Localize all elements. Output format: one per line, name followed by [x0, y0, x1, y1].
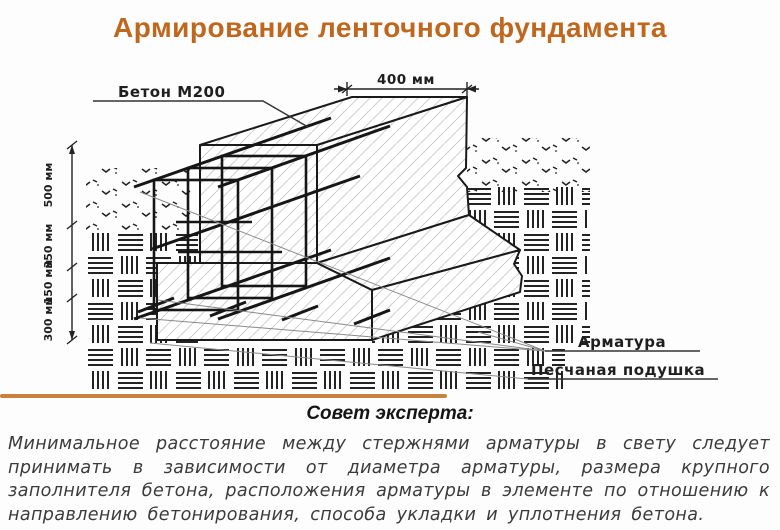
concrete-label-text: Бетон М200 — [118, 83, 225, 101]
sand-label-text: Песчаная подушка — [531, 361, 705, 379]
advice-paragraph: Минимальное расстояние между стержнями а… — [8, 433, 770, 527]
dim-300mm: 300 мм — [42, 297, 55, 342]
wall-cut-face — [200, 145, 317, 263]
grass-patch-right — [467, 138, 590, 192]
slide: Армирование ленточного фундамента — [0, 0, 780, 530]
dimension-left — [67, 141, 77, 344]
dimension-left-labels: 500 мм 350 мм 150 мм 300 мм — [42, 163, 55, 342]
soil-bottom — [86, 344, 565, 392]
advice-line-4: направлению бетонирования, способа уклад… — [8, 504, 770, 528]
advice-line-3: заполнителя бетона, расположения арматур… — [8, 480, 770, 504]
orange-divider — [0, 394, 447, 398]
advice-line-1: Минимальное расстояние между стержнями а… — [8, 433, 770, 457]
advice-line-2: принимать в зависимости от диаметра арма… — [8, 457, 770, 481]
rebar-label-text: Арматура — [578, 333, 666, 351]
dim-500mm: 500 мм — [42, 163, 55, 208]
advice-heading: Совет эксперта: — [0, 403, 780, 425]
dim-400mm: 400 мм — [377, 72, 435, 88]
concrete-block — [157, 97, 522, 340]
